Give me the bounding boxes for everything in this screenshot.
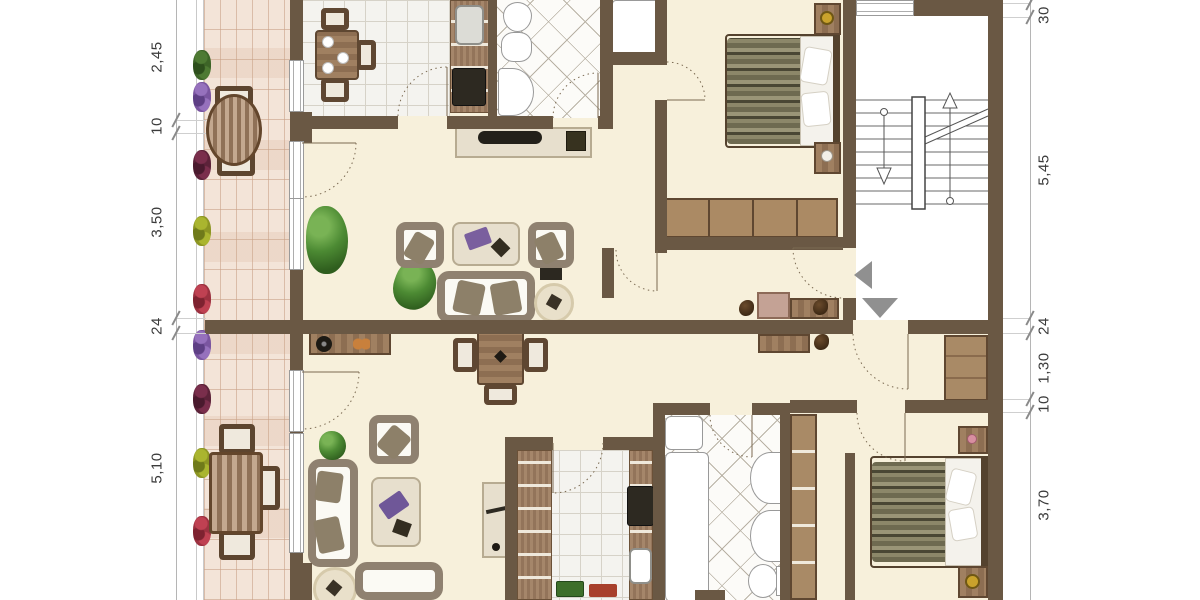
sofa <box>355 562 443 600</box>
extension-line <box>1003 412 1030 413</box>
extension-line <box>1003 318 1030 319</box>
kitchen-mat-red <box>589 584 617 597</box>
patio-round-table <box>206 94 262 166</box>
flower-box-red <box>193 284 211 314</box>
wall-corridor-bottom <box>790 400 857 413</box>
extension-line <box>176 333 206 334</box>
washbasin-lower <box>750 510 784 562</box>
living-window-upper <box>289 198 304 270</box>
sofa <box>437 271 535 323</box>
record-player <box>316 336 332 352</box>
wall-bedroom-lower-left <box>845 453 855 600</box>
wall-bath-lower-right <box>780 403 790 600</box>
floor-plan: 2,45 10 3,50 24 5,10 30 5,45 24 1,30 10 … <box>0 0 1200 600</box>
wall-bedroom-left <box>655 100 667 253</box>
bidet-upper <box>501 32 532 62</box>
balcony-door-lower <box>289 370 304 432</box>
extension-line <box>176 133 206 134</box>
dimension-label-right: 30 <box>1036 6 1053 24</box>
balcony-door-upper <box>289 141 304 199</box>
extension-line <box>176 318 206 319</box>
plate <box>322 36 334 48</box>
living-window-lower <box>289 433 304 553</box>
dimension-line-left <box>176 0 177 600</box>
wall-kitchen-lower-left <box>505 437 517 600</box>
sofa-cushion <box>314 470 344 503</box>
dining-chair <box>524 338 548 372</box>
tv <box>478 131 542 144</box>
kitchen-mat-green <box>556 581 584 597</box>
stove-lower <box>627 486 654 526</box>
wall-bedroom-bottom <box>667 237 843 250</box>
flower-box-purple <box>193 82 211 112</box>
extension-line <box>1003 333 1030 334</box>
extension-line <box>176 120 206 121</box>
dining-chair <box>453 338 477 372</box>
bed-frame <box>725 34 840 148</box>
dimension-label-right: 1,30 <box>1036 352 1053 383</box>
bed-headboard <box>981 456 988 568</box>
dimension-line-right <box>1030 0 1031 600</box>
toilet-lower <box>748 564 778 598</box>
hall-dresser-lower <box>758 334 810 353</box>
headphones <box>353 337 370 351</box>
stairwell-window <box>856 0 914 16</box>
stereo-speaker <box>566 131 586 151</box>
bathtub-lower <box>665 452 709 600</box>
wall-pier <box>290 563 312 600</box>
wall-bath-lower-top <box>653 403 710 415</box>
wall-stairwell-left <box>843 0 856 248</box>
kitchen-window <box>289 60 304 112</box>
nightstand-decor <box>821 150 833 162</box>
shower-basin <box>665 416 703 450</box>
dimension-label-left: 10 <box>149 117 166 135</box>
dimension-label-right: 5,45 <box>1036 154 1053 185</box>
wall-kitchen-lower-right <box>653 437 665 600</box>
flower-box-yellow <box>193 216 211 246</box>
flower-vase <box>967 434 977 444</box>
hall-bench <box>757 292 790 319</box>
hall-wardrobe-lower <box>944 335 988 401</box>
flower-box-maroon <box>193 150 211 180</box>
media-console <box>540 268 562 280</box>
potted-plant <box>319 431 346 460</box>
dining-chair <box>321 8 349 30</box>
dimension-label-right: 10 <box>1036 395 1053 413</box>
sofa-cushion <box>489 280 522 316</box>
wall-bedroom-left <box>655 0 667 62</box>
flower-box-green <box>193 50 211 80</box>
patio-chair <box>219 530 255 560</box>
dimension-label-left: 24 <box>149 317 166 335</box>
wall-corridor-bottom <box>905 400 988 413</box>
bed-frame <box>870 456 988 568</box>
wall-stairwell-left <box>843 298 856 320</box>
desk-lamp <box>492 543 500 551</box>
wall-stub <box>695 590 725 600</box>
stove-upper <box>452 68 486 106</box>
table-lamp <box>965 574 980 589</box>
wall-kitchen-bath-divider <box>488 0 497 116</box>
dining-chair <box>484 384 517 405</box>
wall-between-apartments <box>908 320 1003 334</box>
plate <box>337 52 349 64</box>
wall-exterior-right <box>988 0 1003 600</box>
extension-line <box>1003 17 1030 18</box>
dimension-label-left: 3,50 <box>149 206 166 237</box>
dimension-label-left: 5,10 <box>149 452 166 483</box>
wall-between-apartments <box>205 320 853 334</box>
dining-chair <box>356 40 376 70</box>
dimension-label-right: 24 <box>1036 317 1053 335</box>
kitchen-sink-upper <box>455 5 484 45</box>
washbasin-lower <box>750 452 784 504</box>
extension-line <box>1003 399 1030 400</box>
kitchen-counter-left <box>517 450 552 600</box>
potted-plant <box>306 206 348 274</box>
table-lamp <box>820 11 834 25</box>
wall-hall-stub <box>602 248 614 298</box>
patio-table <box>209 452 263 534</box>
stairwell-floor <box>856 16 988 320</box>
corridor-wardrobe <box>790 414 817 600</box>
wall-kitchen-bottom <box>302 116 398 129</box>
patio-chair <box>219 424 255 454</box>
plate <box>322 62 334 74</box>
dining-chair <box>321 78 349 102</box>
flower-box-purple-2 <box>193 330 211 360</box>
flower-box-maroon-2 <box>193 384 211 414</box>
dimension-label-right: 3,70 <box>1036 489 1053 520</box>
wardrobe-upper-bedroom <box>664 198 838 238</box>
dimension-label-left: 2,45 <box>149 41 166 72</box>
extension-line <box>1003 3 1030 4</box>
wall-bath-bottom <box>447 116 553 129</box>
kitchen-sink-lower <box>629 548 652 584</box>
bed-headboard <box>833 34 840 148</box>
